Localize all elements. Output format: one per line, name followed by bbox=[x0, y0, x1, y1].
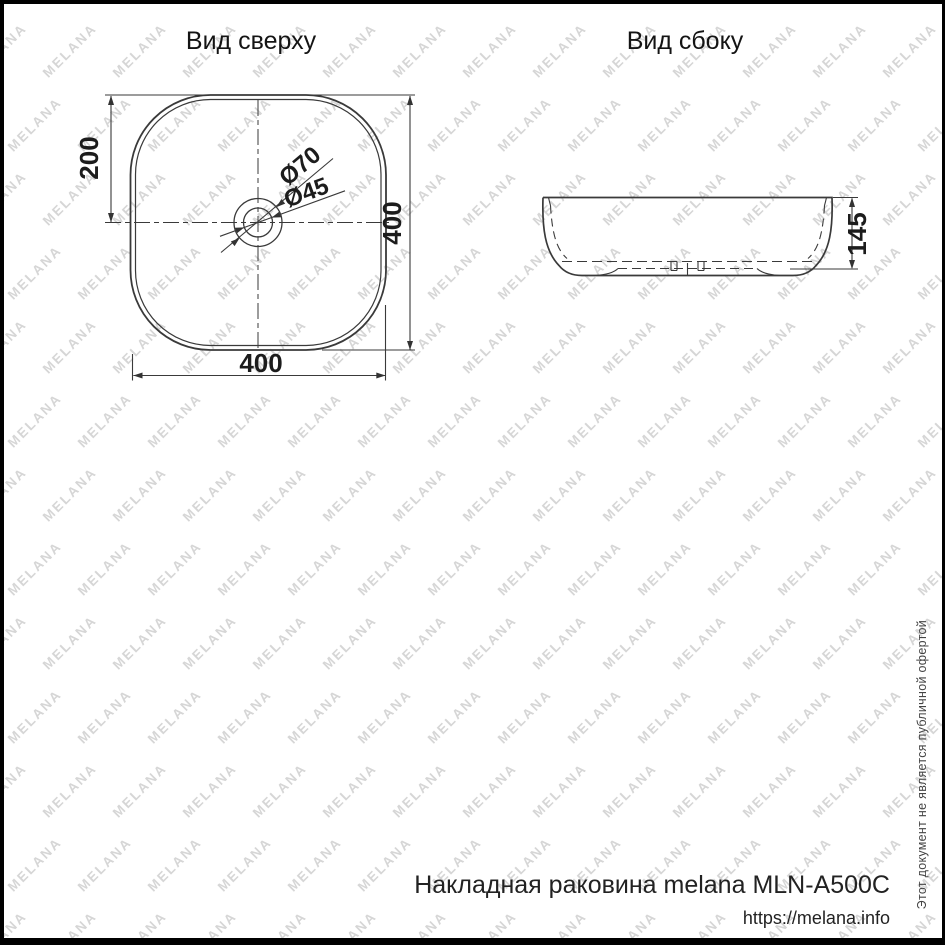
dim-145-arrow-up bbox=[849, 198, 855, 208]
dim-400w-label: 400 bbox=[239, 348, 282, 378]
website-url-text: https://melana.info bbox=[743, 908, 890, 929]
top-view-title: Вид сверху bbox=[121, 27, 381, 56]
dim-400h-label: 400 bbox=[377, 201, 407, 244]
dia70-arrow-lower bbox=[231, 238, 240, 246]
dim-145-label: 145 bbox=[842, 212, 872, 255]
dim-200-arrow-down bbox=[108, 213, 114, 223]
side-view-drawing: 145 bbox=[543, 198, 872, 276]
technical-drawing-page: { "page": { "background": "#ffffff", "fr… bbox=[0, 0, 945, 945]
side-view-title: Вид сбоку bbox=[555, 27, 815, 56]
disclaimer-vertical-text: Этот документ не является публичной офер… bbox=[915, 620, 929, 909]
product-name-text: Накладная раковина melana MLN-A500C bbox=[414, 871, 890, 900]
dim-400h-arrow-down bbox=[407, 341, 413, 350]
rim-tick-left bbox=[549, 198, 551, 206]
dim-400h-arrow-up bbox=[407, 96, 413, 106]
dim-200-arrow-up bbox=[108, 96, 114, 106]
inner-wall-left-dashed bbox=[551, 206, 568, 259]
dim-145-arrow-down bbox=[849, 260, 855, 269]
rim-tick-right bbox=[825, 198, 827, 206]
top-view-drawing: 200 400 400 Ø70 Ø45 bbox=[74, 95, 415, 381]
dim-200-label: 200 bbox=[74, 136, 104, 179]
drawing-canvas: 200 400 400 Ø70 Ø45 bbox=[0, 0, 945, 945]
inner-wall-right-dashed bbox=[808, 206, 825, 259]
foot-hook-left bbox=[595, 269, 618, 276]
foot-hook-right bbox=[757, 269, 780, 276]
dim-400w-arrow-right bbox=[376, 373, 385, 379]
dim-400w-arrow-left bbox=[133, 373, 142, 379]
